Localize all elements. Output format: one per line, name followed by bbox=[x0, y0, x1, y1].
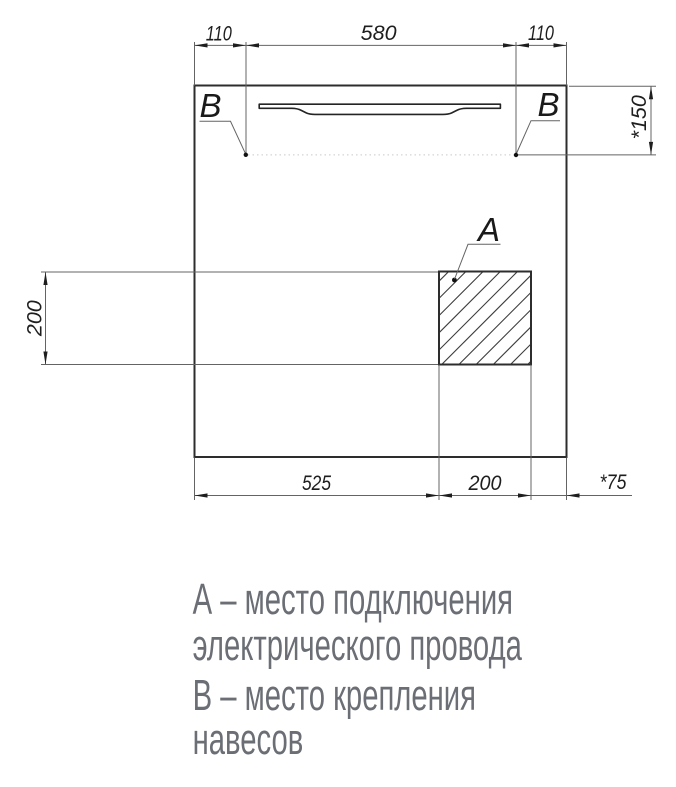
svg-text:110: 110 bbox=[206, 22, 232, 46]
svg-text:А – место подключения: А – место подключения bbox=[193, 574, 513, 623]
svg-text:В – место крепления: В – место крепления bbox=[193, 670, 476, 719]
svg-text:525: 525 bbox=[302, 471, 332, 495]
svg-text:*75: *75 bbox=[600, 470, 628, 494]
svg-text:электрического провода: электрического провода bbox=[193, 620, 522, 669]
svg-text:200: 200 bbox=[23, 300, 47, 337]
svg-text:200: 200 bbox=[468, 471, 502, 495]
svg-text:110: 110 bbox=[528, 21, 554, 45]
svg-text:580: 580 bbox=[361, 21, 397, 45]
svg-text:*150: *150 bbox=[627, 95, 651, 139]
svg-text:навесов: навесов bbox=[193, 714, 304, 763]
svg-text:B: B bbox=[537, 86, 559, 123]
svg-text:A: A bbox=[476, 211, 500, 248]
svg-text:B: B bbox=[199, 87, 221, 124]
